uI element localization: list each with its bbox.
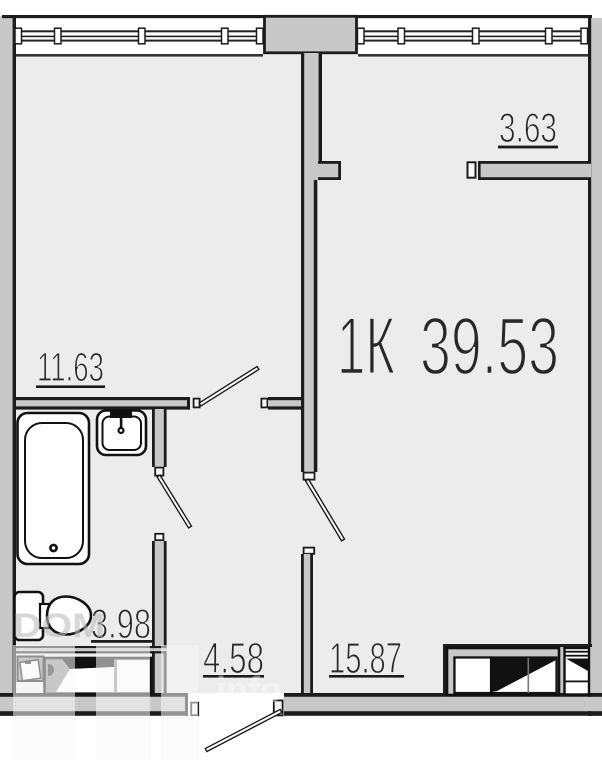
svg-text:3.63: 3.63 bbox=[499, 104, 557, 151]
svg-text:39.53: 39.53 bbox=[420, 301, 559, 392]
svg-text:1К: 1К bbox=[337, 301, 395, 392]
svg-text:11.63: 11.63 bbox=[37, 344, 104, 390]
svg-text:DOM: DOM bbox=[13, 607, 105, 645]
svg-text:.info: .info bbox=[206, 669, 282, 710]
